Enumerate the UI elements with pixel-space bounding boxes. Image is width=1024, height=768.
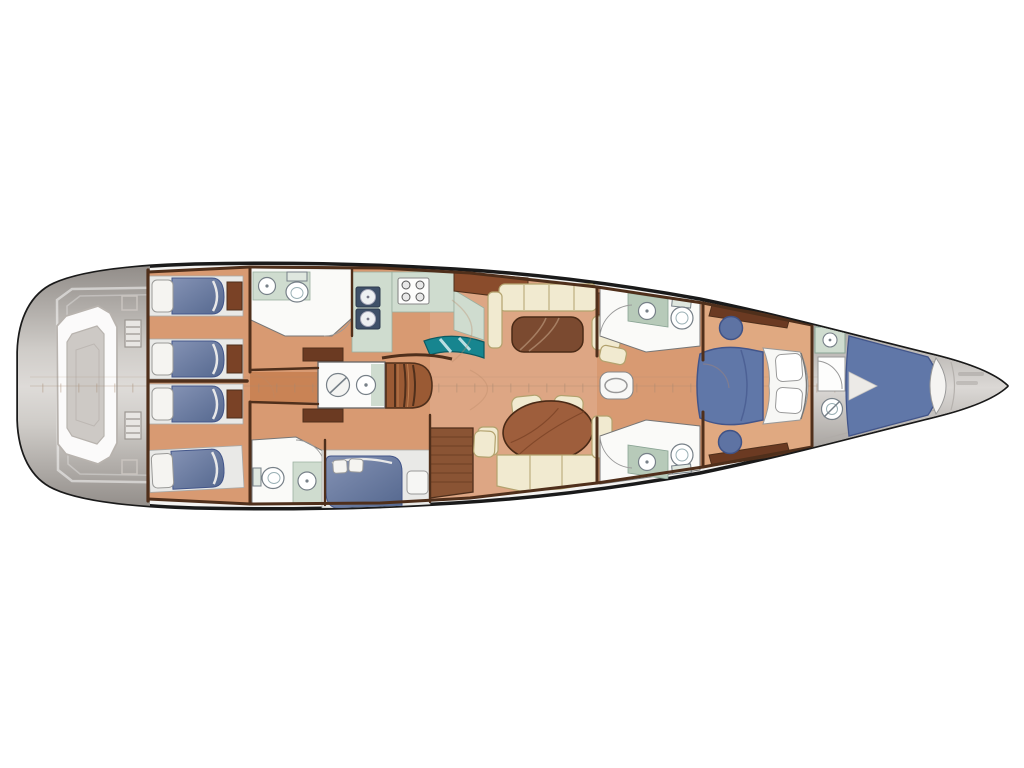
- foot-shelf: [227, 390, 242, 418]
- cabinet-bottom: [303, 409, 343, 422]
- pillow: [151, 453, 174, 488]
- pillow: [152, 280, 173, 312]
- berth-starboard-2: [148, 446, 244, 493]
- sink-icon: [639, 303, 656, 320]
- nightstand: [407, 471, 428, 494]
- aft-head-starboard: [252, 437, 325, 503]
- ottoman-bottom: [719, 431, 742, 454]
- berth-starboard-1: [149, 384, 243, 424]
- toilet-icon: [286, 272, 308, 302]
- pillow: [349, 459, 364, 473]
- sink-icon: [357, 376, 376, 395]
- galley-sink-icon: [356, 287, 380, 307]
- sink-icon: [823, 333, 837, 347]
- deck-plan-svg: Sailing yacht interior deck plan (overhe…: [0, 0, 1024, 768]
- shower-corner: [818, 357, 845, 391]
- pillow: [333, 460, 348, 474]
- mast-step: [600, 372, 633, 399]
- ottoman-top: [720, 317, 743, 340]
- toilet-icon: [253, 468, 284, 489]
- sink-icon: [639, 454, 656, 471]
- foot-shelf: [227, 345, 242, 373]
- sink-icon: [259, 278, 276, 295]
- stencil-mark: [956, 381, 978, 385]
- companionway: [386, 363, 432, 408]
- boarding-ladder-top: [125, 320, 141, 347]
- pillow: [152, 388, 173, 420]
- boarding-ladder-bottom: [125, 412, 141, 439]
- guest-cabin-mid: [322, 450, 430, 508]
- shower-fixture-icon: [327, 374, 350, 397]
- berth-port-2: [149, 339, 243, 379]
- coffee-table: [512, 317, 583, 352]
- dinghy-tube-inner: [67, 326, 104, 444]
- galley-sink2-icon: [356, 309, 380, 329]
- sink-icon: [298, 472, 316, 490]
- foot-shelf: [227, 282, 242, 310]
- cabinet-top: [303, 348, 343, 361]
- settee-arm: [488, 292, 502, 348]
- pillow: [152, 343, 173, 375]
- toilet-icon: [822, 399, 843, 420]
- owner-bed: [697, 347, 763, 424]
- vanity-seat: [473, 430, 495, 457]
- pillow: [775, 353, 803, 382]
- aft-head-port: [251, 268, 352, 336]
- toilet-icon: [671, 298, 693, 329]
- berth-port-1: [149, 276, 243, 316]
- stencil-mark: [958, 372, 984, 376]
- stove-icon: [398, 278, 429, 304]
- yacht-deck-plan: Sailing yacht interior deck plan (overhe…: [0, 0, 1024, 768]
- pillow: [775, 387, 803, 414]
